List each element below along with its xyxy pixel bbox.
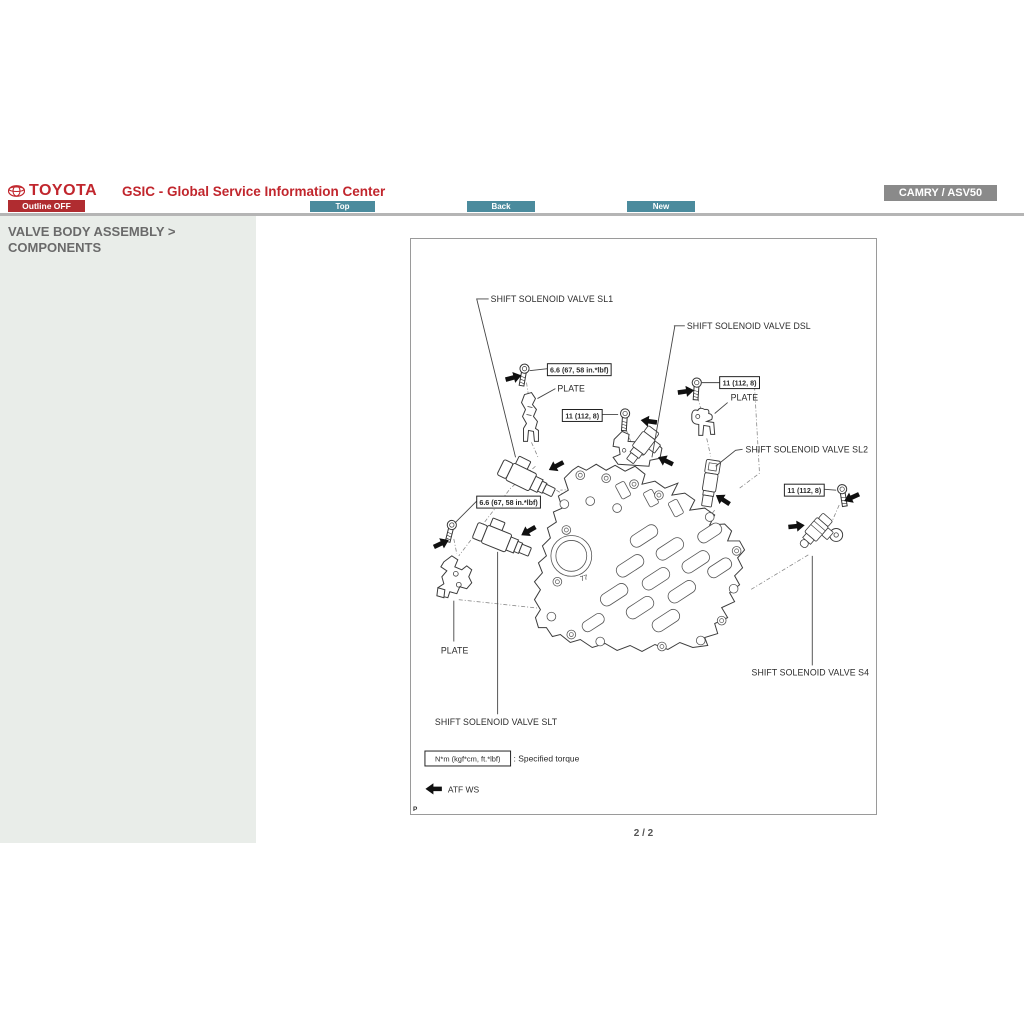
valve-body-diagram: 77 — [411, 239, 876, 814]
solenoid-slt — [472, 513, 537, 560]
figure-page-marker: P — [413, 806, 418, 813]
page-indicator: 2 / 2 — [410, 828, 877, 839]
label-plate-3: PLATE — [441, 645, 469, 655]
legend-torque-unit: N*m (kgf*cm, ft.*lbf) — [435, 754, 501, 763]
torque-66-box1: 6.6 (67, 58 in.*lbf) — [550, 366, 609, 374]
components-figure: 77 — [410, 238, 877, 815]
breadcrumb: VALVE BODY ASSEMBLY > COMPONENTS — [0, 216, 256, 256]
arrow-bolt-sl2 — [677, 385, 695, 398]
vehicle-badge: CAMRY / ASV50 — [884, 185, 997, 201]
breadcrumb-line2: COMPONENTS — [8, 240, 256, 256]
outline-off-button[interactable]: Outline OFF — [8, 200, 85, 212]
legend-torque-caption: : Specified torque — [514, 753, 580, 763]
label-dsl: SHIFT SOLENOID VALVE DSL — [687, 321, 811, 331]
toyota-logo-icon — [8, 185, 25, 197]
bolt-dsl — [619, 409, 630, 431]
page-title: GSIC - Global Service Information Center — [122, 184, 385, 199]
solenoid-s4 — [796, 512, 838, 556]
bolt-sl2-plate — [691, 378, 702, 400]
solenoid-sl2 — [699, 459, 720, 507]
label-sl2: SHIFT SOLENOID VALVE SL2 — [746, 444, 869, 454]
brand-name: TOYOTA — [29, 182, 97, 200]
label-sl1: SHIFT SOLENOID VALVE SL1 — [491, 294, 614, 304]
torque-66-box2: 6.6 (67, 58 in.*lbf) — [479, 499, 538, 507]
arrow-s4 — [788, 520, 806, 533]
atf-arrow-icon — [425, 783, 441, 794]
toyota-brand: TOYOTA — [8, 182, 97, 200]
arrow-sl2 — [713, 490, 733, 508]
torque-11-box3: 11 (112, 8) — [787, 487, 821, 495]
sidebar: VALVE BODY ASSEMBLY > COMPONENTS — [0, 216, 256, 843]
arrow-slt — [518, 522, 538, 540]
new-button[interactable]: New — [627, 201, 695, 212]
back-button[interactable]: Back — [467, 201, 535, 212]
legend-atf: ATF WS — [448, 784, 480, 794]
arrow-sl1 — [546, 457, 566, 475]
plate-dsl-part — [692, 408, 715, 435]
plate-slt-foot — [437, 588, 445, 598]
top-button[interactable]: Top — [310, 201, 375, 212]
torque-11-box2: 11 (112, 8) — [723, 379, 757, 387]
label-plate-2: PLATE — [731, 393, 759, 403]
legend: N*m (kgf*cm, ft.*lbf) : Specified torque… — [413, 751, 580, 813]
torque-11-box1: 11 (112, 8) — [565, 412, 599, 420]
label-slt: SHIFT SOLENOID VALVE SLT — [435, 717, 558, 727]
plate-sl1-part — [522, 393, 539, 442]
label-s4: SHIFT SOLENOID VALVE S4 — [752, 667, 870, 677]
breadcrumb-line1: VALVE BODY ASSEMBLY > — [8, 224, 256, 240]
solenoid-sl1 — [497, 451, 562, 501]
label-plate-1: PLATE — [557, 384, 585, 394]
